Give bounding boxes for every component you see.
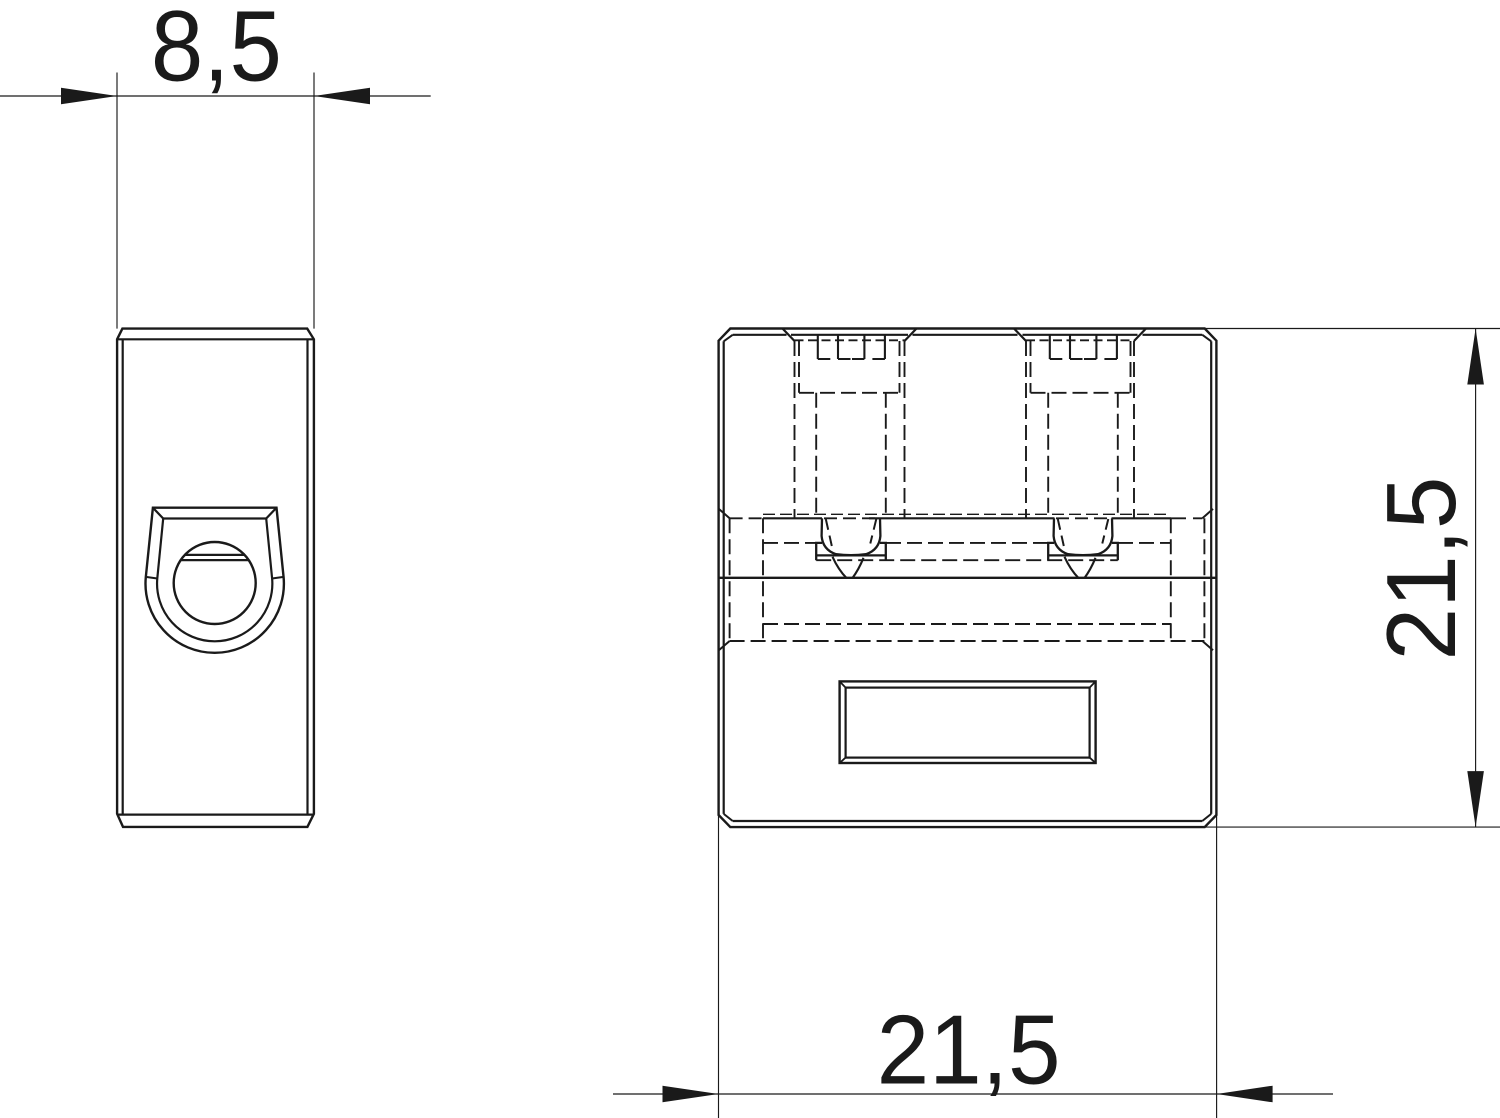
- svg-text:21,5: 21,5: [1366, 477, 1476, 661]
- svg-text:21,5: 21,5: [877, 995, 1061, 1105]
- svg-text:8,5: 8,5: [151, 0, 282, 103]
